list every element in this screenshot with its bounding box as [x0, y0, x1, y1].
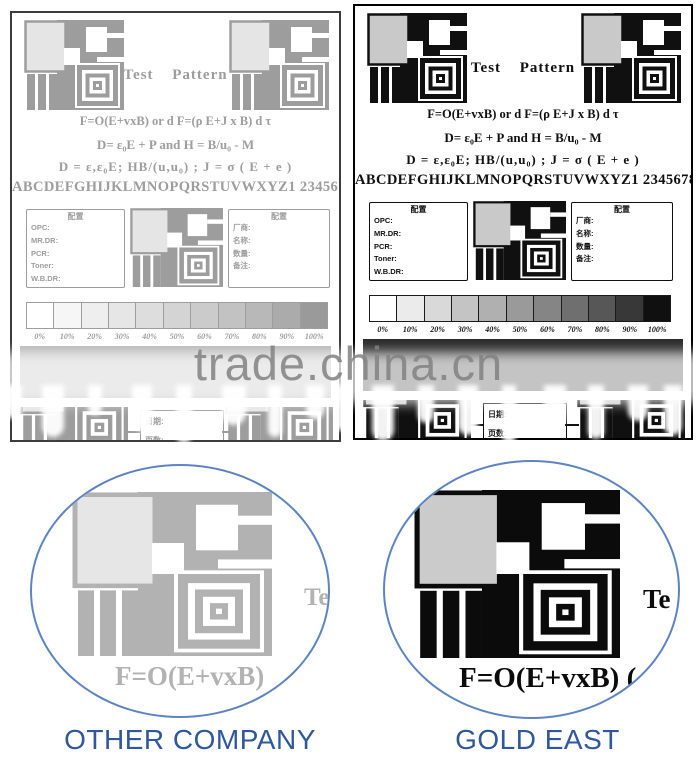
info-box: 配置 厂商: 名称: 数量: 备注: [571, 202, 673, 281]
info-row: 名称: [233, 235, 329, 248]
grayscale-cell [370, 296, 397, 321]
info-row: 数量: [233, 248, 329, 261]
caption-other-company: OTHER COMPANY [20, 724, 360, 756]
formula-line-3: D = ε,ε₀E; HB/(u,u₀) ; J = σ ( E + e ) [12, 159, 339, 175]
info-box: 配置 厂商: 名称: 数量: 备注: [228, 209, 330, 288]
grayscale-cell [562, 296, 589, 321]
grayscale-bar [369, 295, 671, 322]
zoom-inset-other-company: Te F=O(E+vxB) [30, 464, 330, 718]
footer-info-box: 日期: 页数: [483, 403, 567, 440]
grayscale-label: 10% [396, 325, 423, 334]
config-row: PCR: [374, 241, 467, 254]
formula-line-2: D= ε₀E + P and H = B/u₀ - M [355, 130, 691, 146]
grayscale-label: 100% [644, 325, 671, 334]
config-row: W.B.DR: [31, 273, 124, 286]
inset-formula: F=O(E+vxB) [115, 661, 264, 692]
config-box: 配置 OPC: MR.DR: PCR: Toner: W.B.DR: [26, 209, 125, 288]
registration-mark-icon [24, 20, 124, 110]
grayscale-label: 60% [534, 325, 561, 334]
grayscale-cell [301, 303, 327, 328]
grayscale-cell [397, 296, 424, 321]
grayscale-cell [54, 303, 81, 328]
footer-row-pages: 页数: [145, 435, 223, 442]
registration-mark-icon [363, 400, 471, 440]
formula-line-1: F=O(E+vxB) or d F=(ρ E+J x B) d τ [12, 114, 339, 129]
config-row: W.B.DR: [374, 266, 467, 279]
zoom-inset-gold-east: Te F=O(E+vxB) ( [383, 460, 680, 719]
grayscale-label: 20% [424, 325, 451, 334]
info-box-header: 配置 [572, 205, 672, 215]
config-box-header: 配置 [27, 212, 124, 222]
info-row: 备注: [576, 253, 672, 266]
grayscale-cell [109, 303, 136, 328]
product-comparison-image: Test Pattern F=O(E+vxB) or d F=(ρ E+J x … [0, 0, 697, 775]
footer-info-box: 日期: 页数: [140, 410, 224, 442]
footer-row: 日期: 页数: [355, 400, 691, 438]
info-row: 数量: [576, 241, 672, 254]
grayscale-label: 80% [589, 325, 616, 334]
info-row: 厂商: [233, 222, 329, 235]
grayscale-cell [644, 296, 670, 321]
grayscale-cell [219, 303, 246, 328]
footer-row: 日期: 页数: [12, 407, 339, 440]
alphabet-line: ABCDEFGHIJKLMNOPQRSTUVWXYZ1 234567890 [12, 179, 339, 196]
registration-mark-icon [367, 13, 467, 103]
formula-line-3: D = ε,ε₀E; HB/(u,u₀) ; J = σ ( E + e ) [355, 152, 691, 168]
grayscale-label: 0% [369, 325, 396, 334]
grayscale-bar [26, 302, 328, 329]
grayscale-cell [246, 303, 273, 328]
grayscale-cell [452, 296, 479, 321]
config-row: MR.DR: [374, 228, 467, 241]
grayscale-cell [136, 303, 163, 328]
info-row: 备注: [233, 260, 329, 273]
grayscale-cell [82, 303, 109, 328]
info-row: 厂商: [576, 215, 672, 228]
registration-mark-icon [225, 407, 333, 442]
registration-mark-icon [581, 13, 681, 103]
grayscale-cell [164, 303, 191, 328]
grayscale-cell [27, 303, 54, 328]
config-row: OPC: [374, 215, 467, 228]
inset-partial-title: Te [304, 584, 329, 612]
watermark-text: trade.china.cn [0, 336, 697, 391]
grayscale-labels: 0% 10% 20% 30% 40% 50% 60% 70% 80% 90% 1… [369, 325, 671, 334]
config-row: Toner: [374, 253, 467, 266]
footer-row-pages: 页数: [488, 428, 566, 439]
config-row: Toner: [31, 260, 124, 273]
formula-line-1: F=O(E+vxB) or d F=(ρ E+J x B) d τ [355, 107, 691, 122]
grayscale-cell [534, 296, 561, 321]
grayscale-cell [191, 303, 218, 328]
alphabet-line: ABCDEFGHIJKLMNOPQRSTUVWXYZ1 234567890 [355, 172, 691, 189]
caption-gold-east: GOLD EAST [405, 724, 670, 756]
grayscale-label: 30% [451, 325, 478, 334]
connector-line [128, 431, 140, 433]
registration-mark-icon [72, 492, 272, 656]
grayscale-cell [479, 296, 506, 321]
registration-mark-icon [229, 20, 329, 110]
grayscale-label: 40% [479, 325, 506, 334]
connector-line [471, 424, 483, 426]
grayscale-cell [425, 296, 452, 321]
grayscale-cell [616, 296, 643, 321]
config-box: 配置 OPC: MR.DR: PCR: Toner: W.B.DR: [369, 202, 468, 281]
config-box-header: 配置 [370, 205, 467, 215]
formula-line-2: D= ε₀E + P and H = B/u₀ - M [12, 137, 339, 153]
config-row: MR.DR: [31, 235, 124, 248]
footer-row-date: 日期: [488, 409, 566, 420]
inset-formula: F=O(E+vxB) ( [459, 662, 636, 695]
info-box-header: 配置 [229, 212, 329, 222]
registration-mark-icon [577, 400, 685, 440]
grayscale-cell [589, 296, 616, 321]
grayscale-cell [507, 296, 534, 321]
registration-mark-icon [20, 407, 128, 442]
grayscale-label: 70% [561, 325, 588, 334]
registration-mark-icon [473, 201, 566, 280]
footer-row-date: 日期: [145, 416, 223, 427]
grayscale-cell [273, 303, 300, 328]
registration-mark-icon [414, 490, 620, 658]
config-row: PCR: [31, 248, 124, 261]
grayscale-label: 50% [506, 325, 533, 334]
inset-partial-title: Te [643, 584, 671, 615]
config-row: OPC: [31, 222, 124, 235]
grayscale-label: 90% [616, 325, 643, 334]
info-row: 名称: [576, 228, 672, 241]
registration-mark-icon [130, 208, 223, 287]
